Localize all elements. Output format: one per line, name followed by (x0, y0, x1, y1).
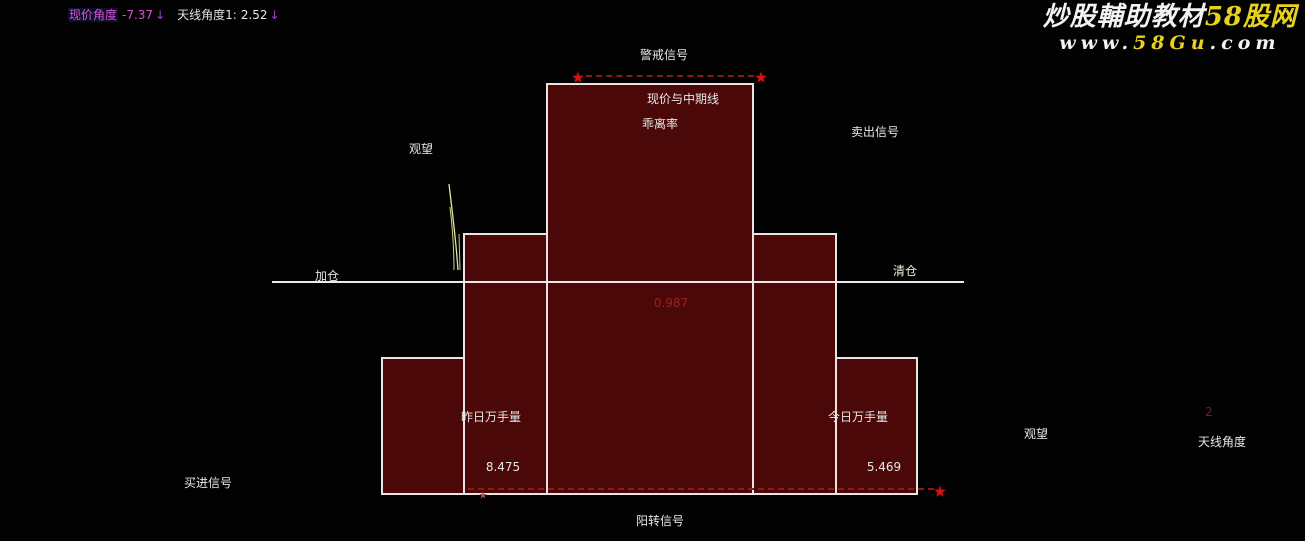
box-title-line2: 乖离率 (642, 115, 678, 132)
watermark-brand: 炒股輔助教材58股网 (1043, 2, 1297, 32)
today-volume-value: 5.469 (867, 460, 901, 474)
price-angle-value: -7.37 (122, 8, 153, 22)
bar-left-low (381, 357, 465, 495)
warning-signal-label: 警戒信号 (640, 46, 688, 63)
antenna-angle1-label: 天线角度1: (177, 8, 237, 22)
watermark: 炒股輔助教材58股网 www.58Gu.com (1043, 2, 1297, 54)
antenna-angle-label: 天线角度 (1198, 433, 1246, 450)
box-title-line1: 现价与中期线 (647, 90, 719, 107)
yesterday-volume-label: 昨日万手量 (461, 408, 521, 425)
watch-label-right: 观望 (1024, 425, 1048, 442)
base-dashed-line (468, 488, 934, 490)
stock-indicator-panel: 现价角度-7.37↓天线角度1:2.52↓ 炒股輔助教材58股网 www.58G… (0, 0, 1305, 541)
antenna-angle-value: 2 (1205, 405, 1213, 419)
zero-line (272, 281, 964, 283)
add-position-label: 加仓 (315, 267, 339, 284)
faint-star-icon: ★ (479, 489, 488, 504)
clear-position-label: 清仓 (893, 262, 917, 279)
bar-right-mid (751, 233, 837, 495)
bias-value: 0.987 (654, 296, 688, 310)
yesterday-volume-value: 8.475 (486, 460, 520, 474)
yang-turn-signal-label: 阳转信号 (636, 512, 684, 529)
warning-dashed-line (586, 75, 754, 77)
warning-star-icon: ★ (754, 71, 767, 86)
price-angle-label: 现价角度 (68, 8, 118, 22)
watermark-url-prefix: www. (1059, 32, 1133, 54)
bar-right-low (835, 357, 918, 495)
watermark-brand-white: 炒股輔助教材 (1043, 2, 1205, 32)
watch-label-left: 观望 (409, 140, 433, 157)
down-arrow-icon: ↓ (270, 8, 280, 22)
base-star-icon: ★ (933, 485, 946, 500)
warning-star-icon: ★ (571, 71, 584, 86)
bar-left-mid (463, 233, 548, 495)
buy-signal-label: 买进信号 (184, 474, 232, 491)
yellow-spike-icon (440, 180, 466, 275)
watermark-url: www.58Gu.com (1043, 32, 1297, 54)
indicator-header: 现价角度-7.37↓天线角度1:2.52↓ (68, 6, 282, 23)
down-arrow-icon: ↓ (155, 8, 165, 22)
bar-center (546, 83, 754, 495)
watermark-url-highlight: 58Gu (1133, 32, 1209, 54)
today-volume-label: 今日万手量 (828, 408, 888, 425)
antenna-angle1-value: 2.52 (241, 8, 268, 22)
sell-signal-label: 卖出信号 (851, 123, 899, 140)
watermark-url-suffix: .com (1210, 32, 1281, 54)
watermark-brand-yellow: 58股网 (1205, 2, 1297, 32)
